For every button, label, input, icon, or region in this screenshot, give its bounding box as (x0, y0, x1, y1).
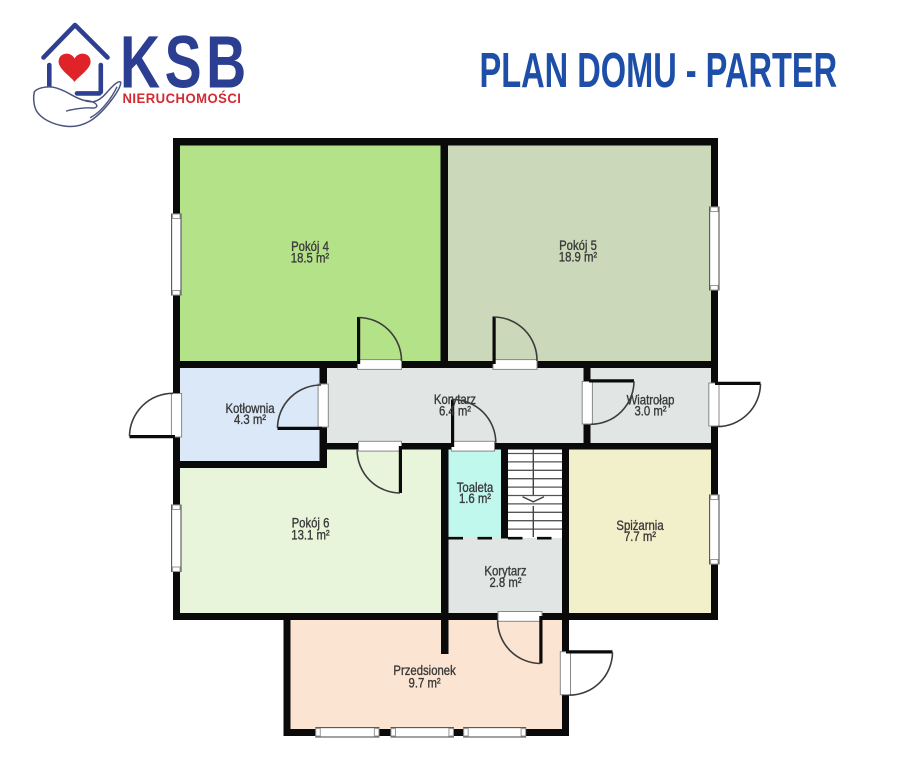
svg-text:13.1 m²: 13.1 m² (291, 528, 329, 543)
svg-text:7.7 m²: 7.7 m² (624, 529, 656, 544)
svg-text:4.3 m²: 4.3 m² (234, 412, 266, 427)
svg-text:NIERUCHOMOŚCI: NIERUCHOMOŚCI (123, 91, 242, 106)
svg-text:1.6 m²: 1.6 m² (459, 491, 491, 506)
svg-text:PLAN DOMU - PARTER: PLAN DOMU - PARTER (480, 42, 838, 97)
svg-text:18.5 m²: 18.5 m² (291, 251, 329, 266)
svg-text:2.8 m²: 2.8 m² (489, 575, 521, 590)
svg-text:3.0 m²: 3.0 m² (634, 403, 666, 418)
svg-text:9.7 m²: 9.7 m² (409, 676, 441, 691)
svg-text:18.9 m²: 18.9 m² (559, 250, 597, 265)
svg-text:6.4 m²: 6.4 m² (439, 403, 471, 418)
